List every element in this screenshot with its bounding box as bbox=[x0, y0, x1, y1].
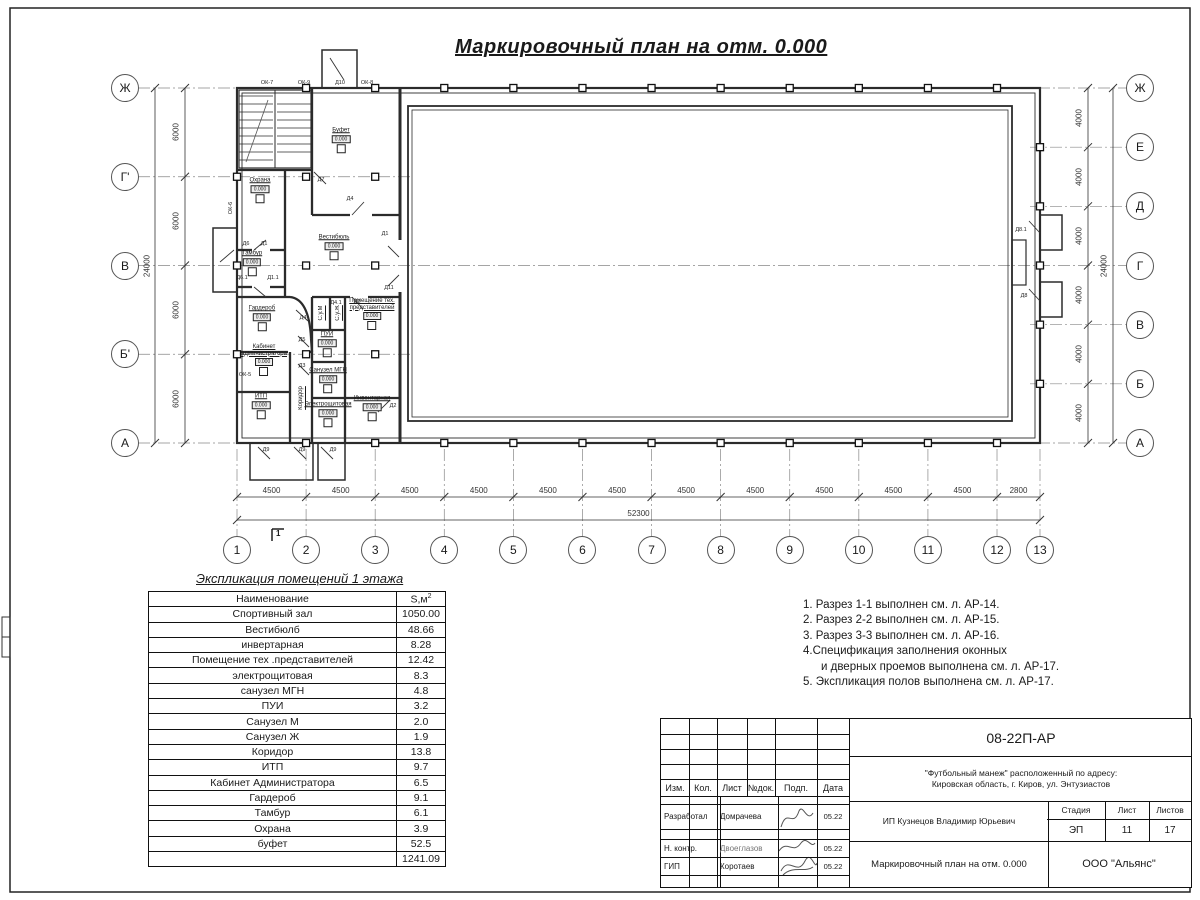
schedule-cell: 13.8 bbox=[397, 744, 446, 759]
dim-label: 4500 bbox=[263, 486, 281, 495]
schedule-col-name: Наименование bbox=[149, 592, 397, 607]
room-number-box bbox=[324, 384, 333, 393]
schedule-row: Помещение тех .представителей12.42 bbox=[149, 653, 446, 668]
room-name: Коридор bbox=[298, 386, 304, 410]
stamp-empty-cell bbox=[817, 734, 850, 750]
stamp-cell: Дата bbox=[817, 780, 850, 797]
stamp-cell: Двоеглазов bbox=[717, 839, 779, 858]
schedule-cell: электрощитовая bbox=[149, 668, 397, 683]
stamp-empty-cell bbox=[689, 764, 718, 780]
dim-label: 4000 bbox=[1075, 286, 1084, 304]
dim-label: 4500 bbox=[401, 486, 419, 495]
stamp-cell: Изм. bbox=[661, 780, 690, 797]
schedule-cell: 3.2 bbox=[397, 699, 446, 714]
plan-line bbox=[246, 100, 268, 162]
room-label: ПУИ0.000 bbox=[318, 331, 337, 357]
opening-mark: Д1 bbox=[261, 241, 268, 247]
plan-line bbox=[352, 202, 364, 215]
axis-bubble-left: А bbox=[111, 429, 139, 457]
column-marker bbox=[855, 440, 862, 447]
schedule-total-row: 1241.09 bbox=[149, 852, 446, 867]
axis-bubble-left: Б' bbox=[111, 340, 139, 368]
level-mark: 0.000 bbox=[363, 312, 382, 320]
stamp-sheets-value: 17 bbox=[1149, 819, 1191, 842]
room-label: ИТП0.000 bbox=[252, 393, 271, 419]
room-number-box bbox=[260, 367, 269, 376]
axis-bubble-right: Б bbox=[1126, 370, 1154, 398]
stamp-empty-cell bbox=[775, 749, 818, 765]
plan-line bbox=[1040, 215, 1062, 250]
schedule-header-row: Наименование S,м2 bbox=[149, 592, 446, 607]
column-marker bbox=[441, 85, 448, 92]
stamp-cell: Н. контр. bbox=[661, 839, 721, 858]
stamp-empty-cell bbox=[775, 734, 818, 750]
schedule-row: инвертарная8.28 bbox=[149, 637, 446, 652]
level-mark: 0.000 bbox=[243, 258, 262, 266]
room-label: Буфет0.000 bbox=[332, 127, 351, 153]
plan-line bbox=[412, 110, 1008, 417]
schedule-cell: 8.28 bbox=[397, 637, 446, 652]
stamp-cell: 05.22 bbox=[817, 857, 850, 876]
room-label: Коридор bbox=[298, 386, 304, 410]
opening-mark: Д1 bbox=[382, 231, 389, 237]
stamp-cell: Разработал bbox=[661, 804, 721, 830]
opening-mark: ОК-6 bbox=[228, 202, 234, 214]
schedule-cell: ИТП bbox=[149, 760, 397, 775]
stamp-empty-cell bbox=[689, 719, 718, 735]
column-marker bbox=[1037, 321, 1044, 328]
dim-label: 4500 bbox=[884, 486, 902, 495]
column-marker bbox=[994, 85, 1001, 92]
dim-label: 2800 bbox=[1010, 486, 1028, 495]
opening-mark: Д1.1 bbox=[267, 275, 278, 281]
plan-line bbox=[1012, 240, 1026, 285]
axis-bubble-right: Д bbox=[1126, 192, 1154, 220]
axis-bubble-bottom: 4 bbox=[430, 536, 458, 564]
column-marker bbox=[1037, 380, 1044, 387]
column-marker bbox=[924, 440, 931, 447]
column-marker bbox=[372, 440, 379, 447]
stamp-cell: 05.22 bbox=[817, 839, 850, 858]
opening-mark: ОК-7 bbox=[261, 80, 273, 86]
stamp-empty-cell bbox=[717, 734, 748, 750]
stamp-empty-cell bbox=[661, 875, 721, 888]
stamp-empty-cell bbox=[817, 719, 850, 735]
axis-bubble-left: Ж bbox=[111, 74, 139, 102]
note-item: и дверных проемов выполнена см. л. АР-17… bbox=[803, 660, 1059, 675]
axis-bubble-bottom: 11 bbox=[914, 536, 942, 564]
level-mark: 0.000 bbox=[253, 313, 272, 321]
room-label: Охрана0.000 bbox=[250, 177, 271, 203]
dim-label: 4500 bbox=[746, 486, 764, 495]
room-label: С.у.М bbox=[318, 305, 324, 320]
stamp-empty-cell bbox=[661, 734, 690, 750]
schedule-cell: Тамбур bbox=[149, 806, 397, 821]
level-mark: 0.000 bbox=[319, 375, 338, 383]
schedule-row: Коридор13.8 bbox=[149, 744, 446, 759]
room-name: Кабинет администратора bbox=[241, 344, 287, 357]
room-name: ПУИ bbox=[321, 331, 333, 338]
room-label: Гардероб0.000 bbox=[249, 305, 275, 331]
plan-line bbox=[213, 228, 237, 292]
room-number-box bbox=[368, 412, 377, 421]
column-marker bbox=[234, 351, 241, 358]
room-number-box bbox=[256, 194, 265, 203]
opening-mark: Д7 bbox=[318, 177, 325, 183]
stamp-sheet-title: Маркировочный план на отм. 0.000 bbox=[849, 841, 1049, 887]
stamp-stage-label: Стадия bbox=[1047, 801, 1106, 820]
column-marker bbox=[579, 440, 586, 447]
schedule-cell: Санузел Ж bbox=[149, 729, 397, 744]
column-marker bbox=[372, 173, 379, 180]
stamp-empty-cell bbox=[689, 749, 718, 765]
stamp-empty-cell bbox=[661, 764, 690, 780]
room-name: С.у.М bbox=[318, 305, 324, 320]
stamp-empty-cell bbox=[817, 764, 850, 780]
stamp-sheets-label: Листов bbox=[1149, 801, 1191, 820]
schedule-cell: 1050.00 bbox=[397, 607, 446, 622]
schedule-total-value: 1241.09 bbox=[397, 852, 446, 867]
plan-line bbox=[2, 637, 10, 657]
room-label: Тамбур0.000 bbox=[242, 250, 262, 276]
note-item: 1. Разрез 1-1 выполнен см. л. АР-14. bbox=[803, 598, 1059, 613]
stamp-empty-cell bbox=[775, 839, 818, 858]
axis-bubble-bottom: 10 bbox=[845, 536, 873, 564]
stamp-empty-cell bbox=[747, 734, 776, 750]
column-marker bbox=[1037, 144, 1044, 151]
opening-mark: Д3 bbox=[299, 363, 306, 369]
axis-bubble-right: В bbox=[1126, 311, 1154, 339]
room-number-box bbox=[330, 251, 339, 260]
column-marker bbox=[303, 262, 310, 269]
axis-bubble-bottom: 9 bbox=[776, 536, 804, 564]
stamp-empty-cell bbox=[717, 719, 748, 735]
note-item: 3. Разрез 3-3 выполнен см. л. АР-16. bbox=[803, 629, 1059, 644]
opening-mark: Д9 bbox=[263, 447, 270, 453]
stamp-cell: Лист bbox=[717, 780, 748, 797]
level-mark: 0.000 bbox=[325, 242, 344, 250]
column-marker bbox=[855, 85, 862, 92]
schedule-row: Санузел Ж1.9 bbox=[149, 729, 446, 744]
level-mark: 0.000 bbox=[319, 409, 338, 417]
schedule-cell: Помещение тех .представителей bbox=[149, 653, 397, 668]
axis-bubble-bottom: 13 bbox=[1026, 536, 1054, 564]
column-marker bbox=[510, 440, 517, 447]
opening-mark: Д6 bbox=[243, 241, 250, 247]
column-marker bbox=[648, 85, 655, 92]
schedule-cell: 8.3 bbox=[397, 668, 446, 683]
room-name: ИТП bbox=[255, 393, 267, 400]
column-marker bbox=[303, 440, 310, 447]
schedule-cell: ПУИ bbox=[149, 699, 397, 714]
axis-bubble-bottom: 6 bbox=[568, 536, 596, 564]
dim-label: 4500 bbox=[332, 486, 350, 495]
column-marker bbox=[234, 262, 241, 269]
room-number-box bbox=[258, 322, 267, 331]
opening-mark: Д2 bbox=[354, 299, 361, 305]
schedule-cell: Охрана bbox=[149, 821, 397, 836]
schedule-cell: санузел МГН bbox=[149, 683, 397, 698]
stamp-cell: 05.22 bbox=[817, 804, 850, 830]
stamp-empty-cell bbox=[661, 749, 690, 765]
level-mark: 0.000 bbox=[251, 185, 270, 193]
schedule-row: Вестибюлб48.66 bbox=[149, 622, 446, 637]
dim-total-label: 24000 bbox=[1100, 254, 1109, 276]
room-number-box bbox=[256, 410, 265, 419]
level-mark: 0.000 bbox=[252, 401, 271, 409]
stamp-empty-cell bbox=[747, 719, 776, 735]
dim-label: 4000 bbox=[1075, 345, 1084, 363]
note-item: 2. Разрез 2-2 выполнен см. л. АР-15. bbox=[803, 613, 1059, 628]
stamp-empty-cell bbox=[775, 764, 818, 780]
stamp-empty-cell bbox=[661, 719, 690, 735]
column-marker bbox=[372, 262, 379, 269]
opening-mark: Д8.1 bbox=[1015, 227, 1026, 233]
stamp-empty-cell bbox=[717, 764, 748, 780]
title-block: 08-22П-АР "Футбольный манеж" расположенн… bbox=[660, 718, 1192, 888]
schedule-cell: 3.9 bbox=[397, 821, 446, 836]
room-name: Вестибюль bbox=[319, 234, 350, 241]
room-schedule-table: Наименование S,м2 Спортивный зал1050.00В… bbox=[148, 591, 446, 867]
schedule-row: ИТП9.7 bbox=[149, 760, 446, 775]
schedule-cell: 6.5 bbox=[397, 775, 446, 790]
dim-label: 4500 bbox=[815, 486, 833, 495]
plan-line bbox=[408, 106, 1012, 421]
opening-mark: Д9 bbox=[299, 447, 306, 453]
schedule-row: Тамбур6.1 bbox=[149, 806, 446, 821]
room-name: Тамбур bbox=[242, 250, 262, 257]
plan-line bbox=[1029, 289, 1040, 301]
schedule-row: ПУИ3.2 bbox=[149, 699, 446, 714]
column-marker bbox=[924, 85, 931, 92]
room-number-box bbox=[322, 348, 331, 357]
schedule-cell: 2.0 bbox=[397, 714, 446, 729]
plan-line bbox=[220, 250, 234, 262]
room-name: Охрана bbox=[250, 177, 271, 184]
opening-mark: Д9 bbox=[330, 447, 337, 453]
schedule-cell: буфет bbox=[149, 836, 397, 851]
column-marker bbox=[372, 351, 379, 358]
room-name: Буфет bbox=[332, 127, 350, 134]
opening-mark: Д4 bbox=[300, 315, 307, 321]
stamp-cell: Коротаев bbox=[717, 857, 779, 876]
schedule-row: электрощитовая8.3 bbox=[149, 668, 446, 683]
schedule-cell: 1.9 bbox=[397, 729, 446, 744]
dim-total-label: 24000 bbox=[143, 254, 152, 276]
opening-mark: Д2 bbox=[390, 403, 397, 409]
column-marker bbox=[1037, 203, 1044, 210]
plan-line bbox=[2, 617, 10, 637]
stamp-empty-cell bbox=[817, 749, 850, 765]
room-label: Вестибюль0.000 bbox=[319, 234, 350, 260]
dim-label: 6000 bbox=[172, 123, 181, 141]
axis-bubble-bottom: 3 bbox=[361, 536, 389, 564]
opening-mark: Д4 bbox=[347, 196, 354, 202]
room-number-box bbox=[367, 321, 376, 330]
stamp-sheet-value: 11 bbox=[1105, 819, 1150, 842]
schedule-cell: 6.1 bbox=[397, 806, 446, 821]
dim-label: 4000 bbox=[1075, 168, 1084, 186]
schedule-row: Охрана3.9 bbox=[149, 821, 446, 836]
axis-bubble-left: Г' bbox=[111, 163, 139, 191]
schedule-row: санузел МГН4.8 bbox=[149, 683, 446, 698]
axis-bubble-left: В bbox=[111, 252, 139, 280]
sheet-title: Маркировочный план на отм. 0.000 bbox=[455, 36, 827, 59]
column-marker bbox=[717, 440, 724, 447]
note-item: 4.Спецификация заполнения оконных bbox=[803, 644, 1059, 659]
column-marker bbox=[234, 173, 241, 180]
stamp-org: ООО "Альянс" bbox=[1047, 841, 1191, 887]
opening-mark: Д8 bbox=[1021, 293, 1028, 299]
opening-mark: Д5 bbox=[299, 337, 306, 343]
dim-label: 4500 bbox=[539, 486, 557, 495]
note-item: 5. Экспликация полов выполнена см. л. АР… bbox=[803, 675, 1059, 690]
dim-label: 4000 bbox=[1075, 405, 1084, 423]
opening-mark: ОК-9 bbox=[298, 80, 310, 86]
dim-label: 4500 bbox=[677, 486, 695, 495]
axis-bubble-bottom: 12 bbox=[983, 536, 1011, 564]
schedule-cell: инвертарная bbox=[149, 637, 397, 652]
stamp-empty-cell bbox=[775, 804, 818, 830]
schedule-cell: Спортивный зал bbox=[149, 607, 397, 622]
stamp-empty-cell bbox=[717, 749, 748, 765]
stamp-cell: №док. bbox=[747, 780, 776, 797]
axis-bubble-right: Е bbox=[1126, 133, 1154, 161]
stamp-sheet-label: Лист bbox=[1105, 801, 1150, 820]
room-label: Инвентарная0.000 bbox=[354, 395, 391, 421]
column-marker bbox=[786, 85, 793, 92]
room-name: Гардероб bbox=[249, 305, 275, 312]
schedule-cell: 12.42 bbox=[397, 653, 446, 668]
axis-bubble-bottom: 2 bbox=[292, 536, 320, 564]
schedule-row: буфет52.5 bbox=[149, 836, 446, 851]
dim-label: 6000 bbox=[172, 301, 181, 319]
stamp-empty-cell bbox=[689, 734, 718, 750]
stamp-empty-cell bbox=[747, 749, 776, 765]
column-marker bbox=[510, 85, 517, 92]
room-number-box bbox=[323, 418, 332, 427]
axis-bubble-bottom: 7 bbox=[638, 536, 666, 564]
stamp-empty-cell bbox=[775, 719, 818, 735]
stamp-empty-cell bbox=[717, 875, 779, 888]
stamp-stage-value: ЭП bbox=[1047, 819, 1106, 842]
dim-label: 4500 bbox=[470, 486, 488, 495]
schedule-cell: Гардероб bbox=[149, 790, 397, 805]
schedule-cell: Кабинет Администратора bbox=[149, 775, 397, 790]
level-mark: 0.000 bbox=[255, 358, 274, 366]
axis-bubble-right: Г bbox=[1126, 252, 1154, 280]
schedule-row: Спортивный зал1050.00 bbox=[149, 607, 446, 622]
level-mark: 0.000 bbox=[332, 135, 351, 143]
plan-line bbox=[254, 287, 266, 297]
stamp-empty-cell bbox=[817, 875, 850, 888]
notes-list: 1. Разрез 1-1 выполнен см. л. АР-14.2. Р… bbox=[803, 598, 1059, 690]
stamp-cell: ГИП bbox=[661, 857, 721, 876]
column-marker bbox=[786, 440, 793, 447]
opening-mark: ОК-8 bbox=[361, 80, 373, 86]
schedule-col-area: S,м2 bbox=[397, 592, 446, 607]
stamp-empty-cell bbox=[747, 764, 776, 780]
axis-bubble-bottom: 1 bbox=[223, 536, 251, 564]
dim-label: 6000 bbox=[172, 390, 181, 408]
opening-mark: Д6.1 bbox=[236, 275, 247, 281]
axis-bubble-bottom: 8 bbox=[707, 536, 735, 564]
room-label: С.у.Ж bbox=[335, 305, 341, 321]
schedule-row: Кабинет Администратора6.5 bbox=[149, 775, 446, 790]
section-mark: 1 bbox=[276, 529, 280, 538]
schedule-cell: 9.1 bbox=[397, 790, 446, 805]
plan-line bbox=[330, 58, 344, 80]
room-name: С.у.Ж bbox=[335, 305, 341, 321]
column-marker bbox=[441, 440, 448, 447]
schedule-row: Гардероб9.1 bbox=[149, 790, 446, 805]
stamp-project: "Футбольный манеж" расположенный по адре… bbox=[849, 756, 1192, 802]
stamp-empty-cell bbox=[775, 857, 818, 876]
room-name: Инвентарная bbox=[354, 395, 391, 402]
stamp-empty-cell bbox=[775, 875, 818, 888]
schedule-cell bbox=[149, 852, 397, 867]
axis-bubble-right: А bbox=[1126, 429, 1154, 457]
column-marker bbox=[1037, 262, 1044, 269]
schedule-cell: 52.5 bbox=[397, 836, 446, 851]
stamp-cell: Домрачева bbox=[717, 804, 779, 830]
room-number-box bbox=[248, 267, 257, 276]
column-marker bbox=[303, 173, 310, 180]
column-marker bbox=[579, 85, 586, 92]
stamp-client: ИП Кузнецов Владимир Юрьевич bbox=[849, 801, 1049, 842]
schedule-cell: 4.8 bbox=[397, 683, 446, 698]
dim-label: 4000 bbox=[1075, 227, 1084, 245]
schedule-cell: 48.66 bbox=[397, 622, 446, 637]
schedule-title: Экспликация помещений 1 этажа bbox=[196, 571, 403, 586]
dim-label: 4500 bbox=[608, 486, 626, 495]
axis-bubble-bottom: 5 bbox=[499, 536, 527, 564]
column-marker bbox=[994, 440, 1001, 447]
plan-line bbox=[388, 246, 399, 257]
level-mark: 0.000 bbox=[363, 403, 382, 411]
axis-bubble-right: Ж bbox=[1126, 74, 1154, 102]
room-label: Электрощитовая0.000 bbox=[304, 401, 351, 427]
stamp-doc-number: 08-22П-АР bbox=[849, 719, 1192, 757]
room-label: Санузел МГН0.000 bbox=[309, 367, 347, 393]
stamp-cell: Подп. bbox=[775, 780, 818, 797]
column-marker bbox=[717, 85, 724, 92]
opening-mark: ОК-5 bbox=[239, 372, 251, 378]
drawing-sheet: Маркировочный план на отм. 0.000 ЖГ'ВБ'А… bbox=[0, 0, 1200, 900]
schedule-row: Санузел М2.0 bbox=[149, 714, 446, 729]
schedule-cell: Санузел М bbox=[149, 714, 397, 729]
opening-mark: Д4.1 bbox=[330, 300, 341, 306]
dim-label: 6000 bbox=[172, 212, 181, 230]
dim-label: 4500 bbox=[954, 486, 972, 495]
opening-mark: Д10 bbox=[335, 80, 345, 86]
schedule-cell: Вестибюлб bbox=[149, 622, 397, 637]
opening-mark: Д11 bbox=[384, 285, 393, 291]
room-name: Санузел МГН bbox=[309, 367, 347, 374]
schedule-cell: Коридор bbox=[149, 744, 397, 759]
column-marker bbox=[303, 351, 310, 358]
room-name: Электрощитовая bbox=[304, 401, 351, 408]
dim-total-label: 52300 bbox=[627, 509, 649, 518]
plan-line bbox=[1029, 221, 1040, 233]
column-marker bbox=[648, 440, 655, 447]
level-mark: 0.000 bbox=[318, 339, 337, 347]
schedule-cell: 9.7 bbox=[397, 760, 446, 775]
room-number-box bbox=[336, 144, 345, 153]
plan-line bbox=[1040, 282, 1062, 317]
dim-label: 4000 bbox=[1075, 109, 1084, 127]
stamp-cell: Кол. bbox=[689, 780, 718, 797]
